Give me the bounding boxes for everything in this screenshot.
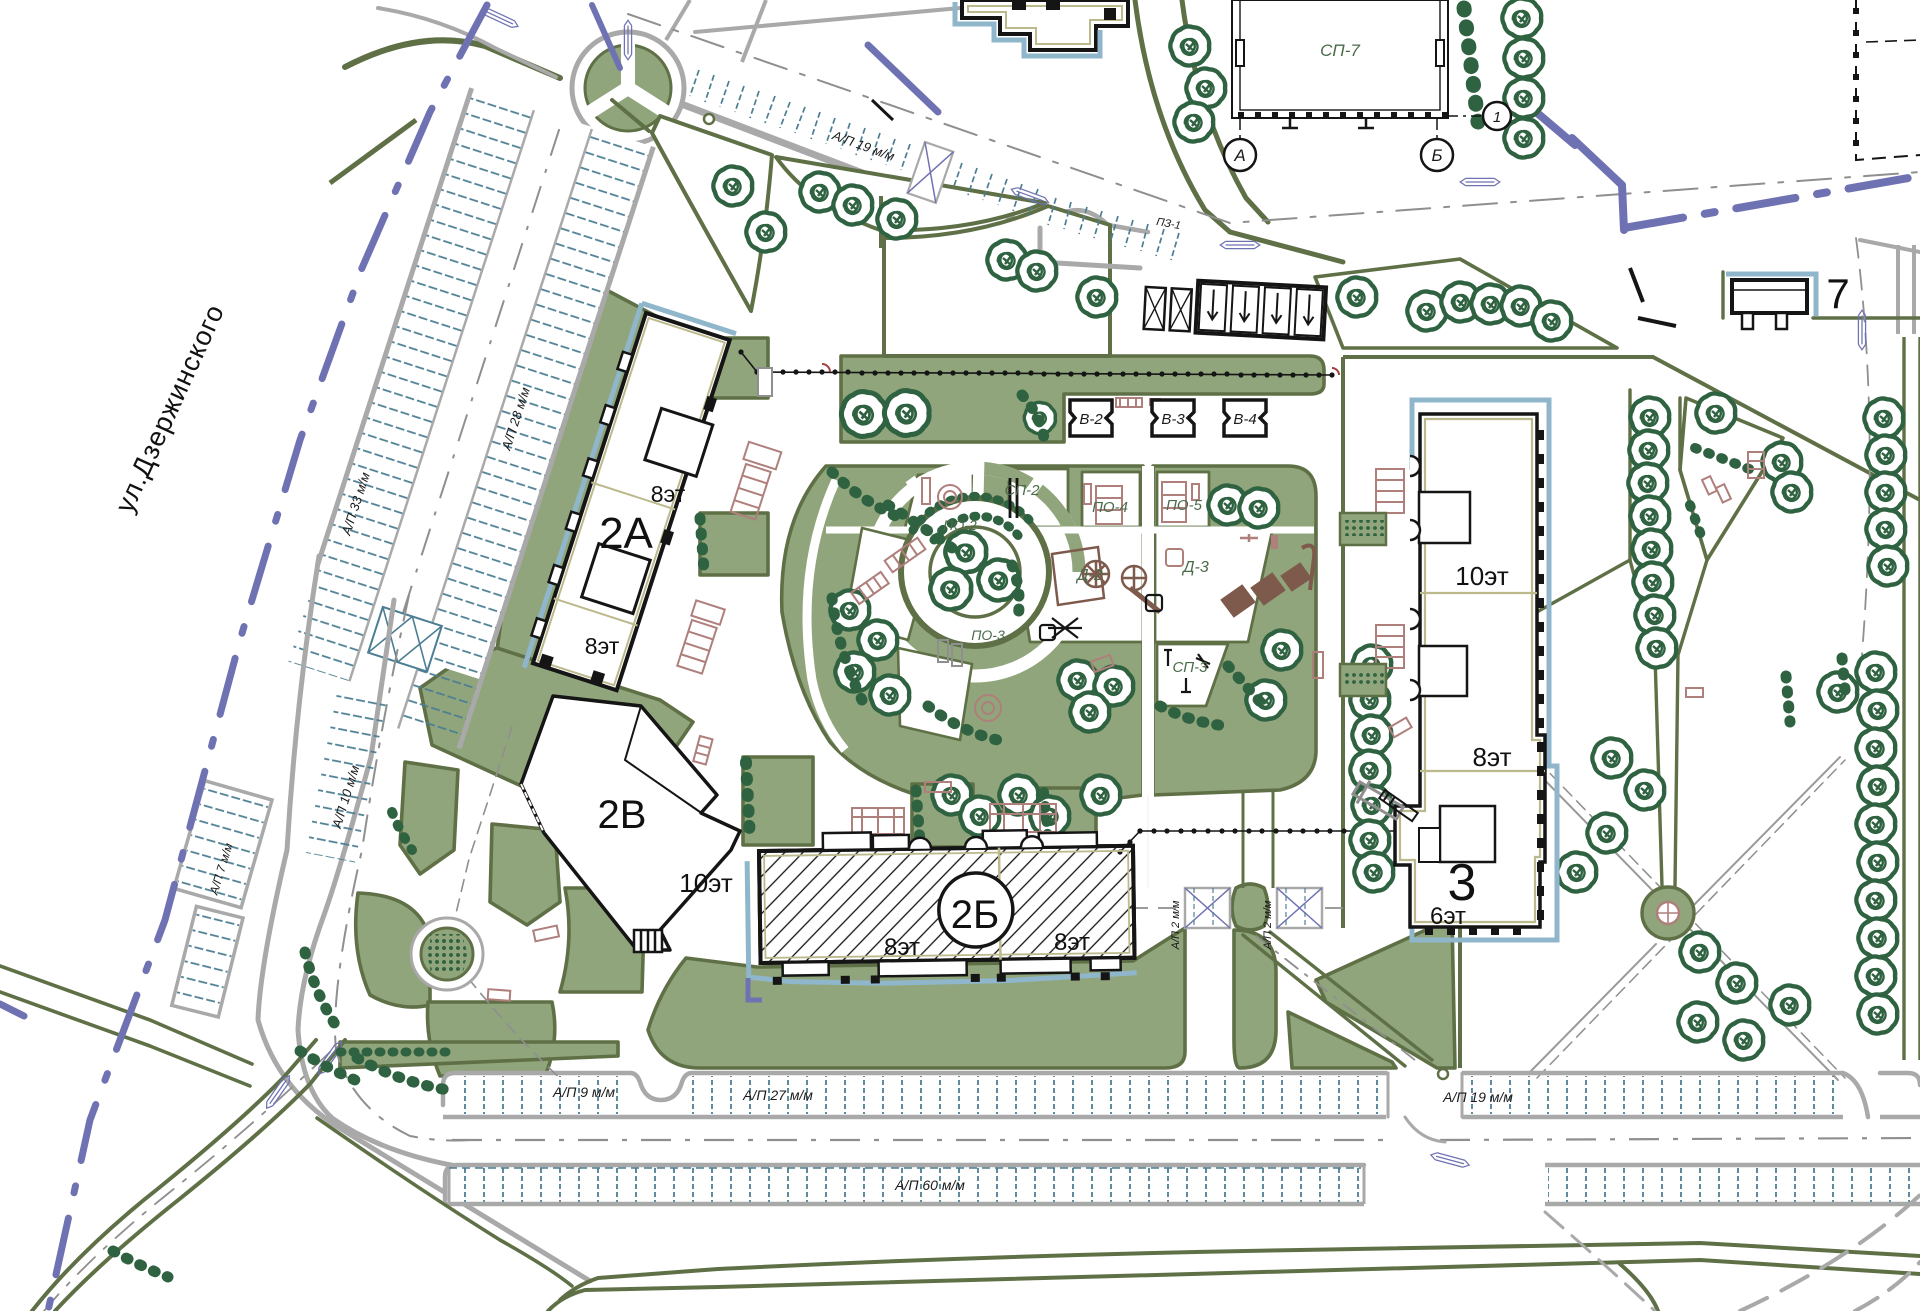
svg-text:СП-7: СП-7 <box>1320 41 1360 60</box>
svg-text:ПО-5: ПО-5 <box>1166 497 1203 514</box>
svg-text:1: 1 <box>1493 109 1501 126</box>
svg-text:2Б: 2Б <box>951 893 1000 937</box>
svg-text:7: 7 <box>1826 270 1849 317</box>
svg-text:8эт: 8эт <box>884 934 920 961</box>
svg-text:8эт: 8эт <box>651 481 686 507</box>
svg-text:Д-2: Д-2 <box>1075 567 1103 584</box>
svg-text:8эт: 8эт <box>1472 742 1511 772</box>
svg-text:2В: 2В <box>598 793 647 837</box>
svg-text:СП-2: СП-2 <box>1004 482 1040 499</box>
svg-text:ПО-4: ПО-4 <box>1092 499 1128 516</box>
svg-text:ПО-3: ПО-3 <box>971 627 1005 643</box>
svg-text:ПО-2: ПО-2 <box>943 517 977 533</box>
svg-text:А/П 9 м/м: А/П 9 м/м <box>552 1084 615 1100</box>
svg-text:2А: 2А <box>599 509 653 558</box>
svg-text:СП-3: СП-3 <box>1172 659 1208 676</box>
svg-text:В-2: В-2 <box>1079 411 1103 428</box>
svg-text:А/П 19 м/м: А/П 19 м/м <box>1442 1089 1513 1105</box>
svg-text:8эт: 8эт <box>585 633 620 659</box>
svg-text:10эт: 10эт <box>679 868 733 898</box>
svg-text:6эт: 6эт <box>1430 903 1466 930</box>
svg-text:Б: Б <box>1431 146 1442 165</box>
svg-text:8эт: 8эт <box>1054 929 1090 956</box>
svg-text:В-3: В-3 <box>1161 411 1185 428</box>
svg-text:А/П 60 м/м: А/П 60 м/м <box>894 1177 965 1193</box>
svg-text:А/П 27 м/м: А/П 27 м/м <box>742 1087 813 1103</box>
svg-text:В-4: В-4 <box>1233 411 1256 428</box>
svg-text:А/П 2 м/м: А/П 2 м/м <box>1262 900 1274 950</box>
svg-text:Д-3: Д-3 <box>1181 559 1209 576</box>
svg-text:А: А <box>1233 146 1245 165</box>
svg-text:10эт: 10эт <box>1455 561 1509 591</box>
